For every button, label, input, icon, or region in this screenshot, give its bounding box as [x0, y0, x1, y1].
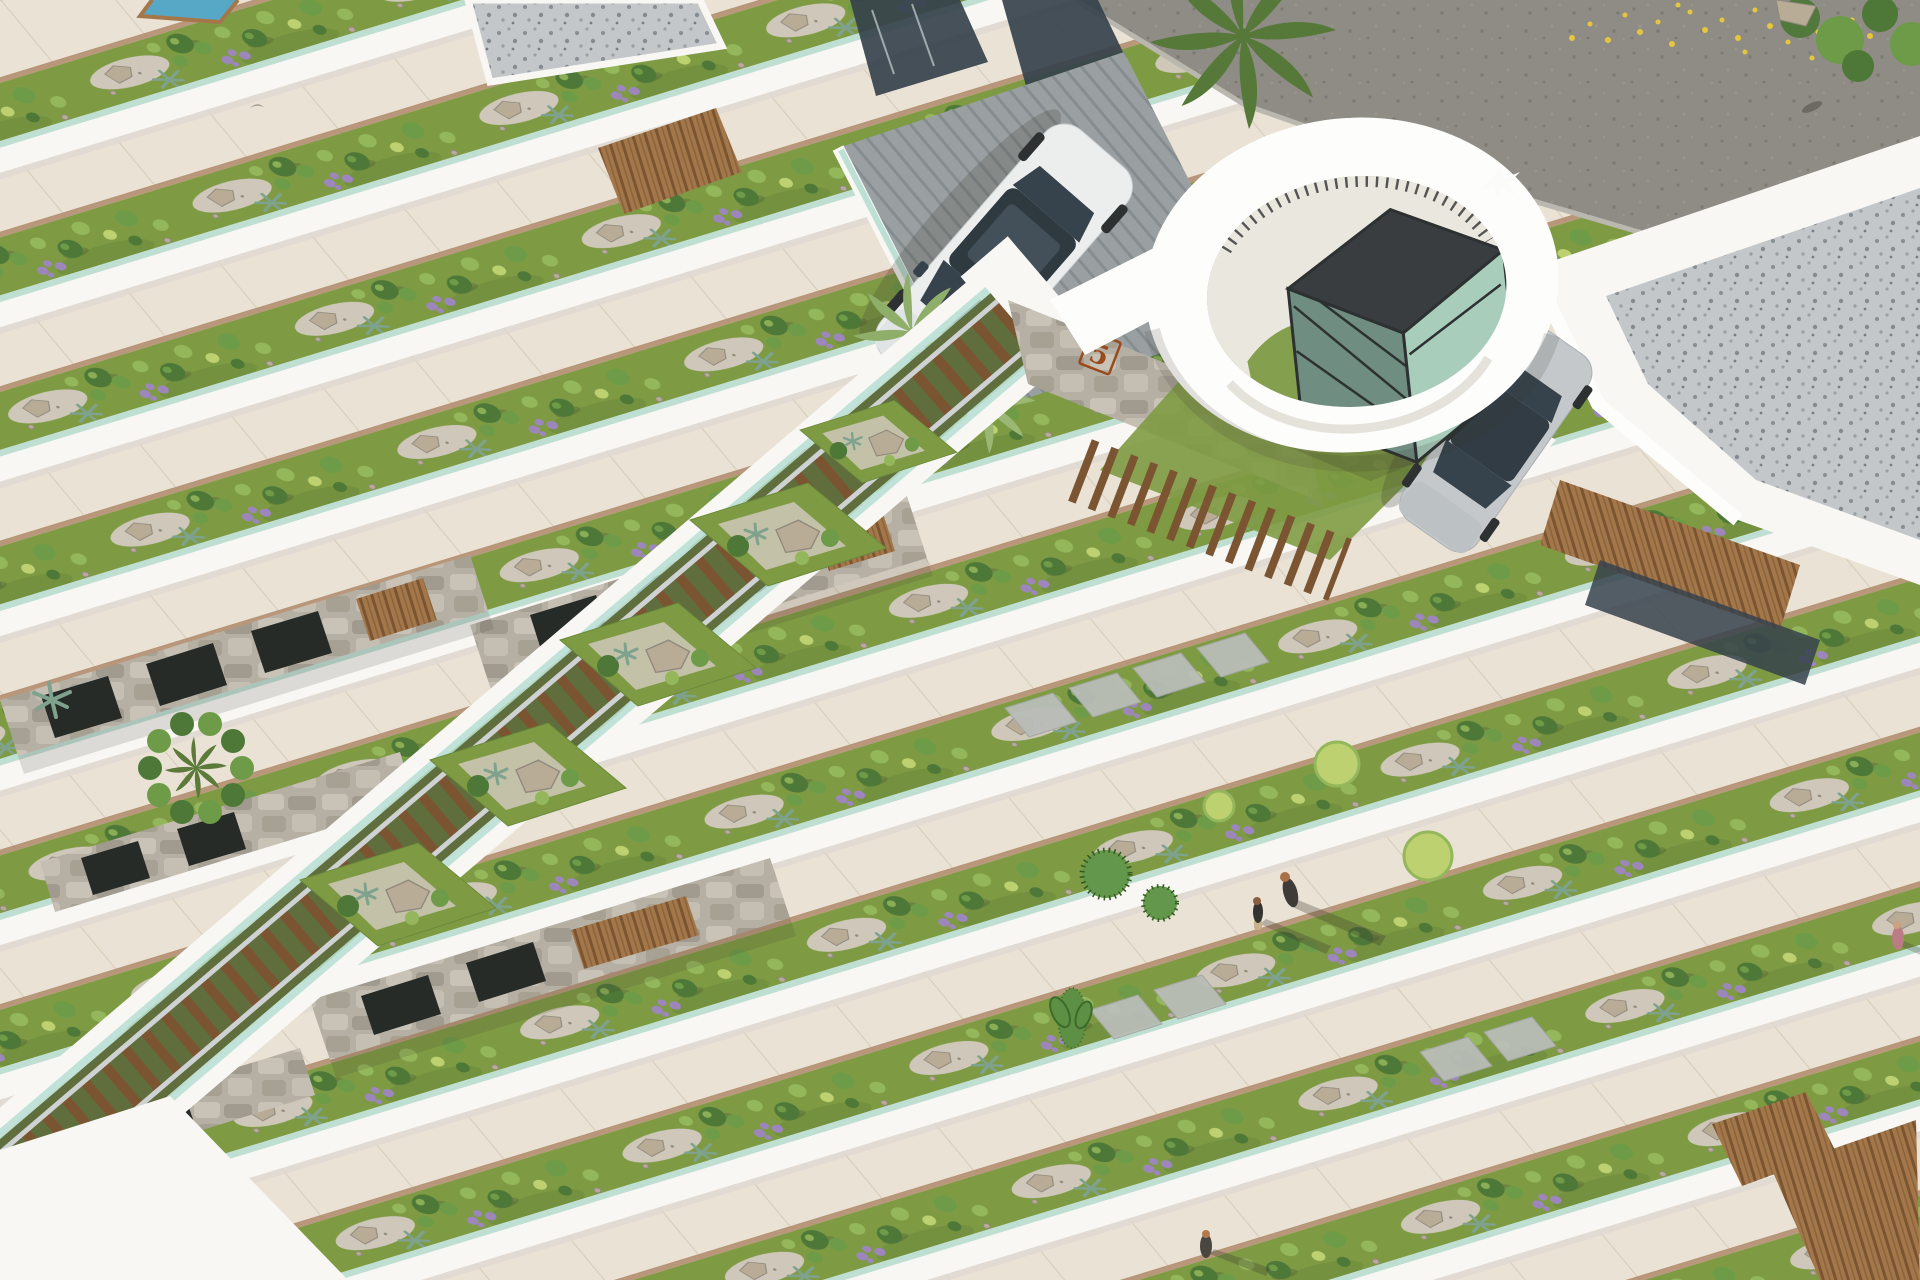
barrel-cactus: [1143, 886, 1177, 920]
head: [1280, 872, 1290, 882]
barrel-cactus: [1082, 850, 1130, 898]
head: [1893, 921, 1901, 929]
body: [1892, 926, 1904, 950]
chartreuse-bush: [1404, 832, 1452, 880]
chartreuse-bush: [1204, 791, 1234, 821]
aerial-render: 9 5: [0, 0, 1920, 1280]
head: [1202, 1230, 1210, 1238]
chartreuse-bush: [1315, 742, 1359, 786]
head: [1253, 897, 1261, 905]
